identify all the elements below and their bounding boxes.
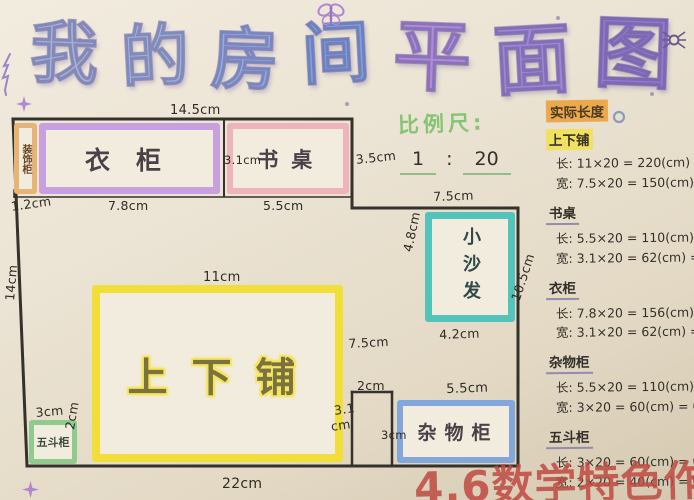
calc-section-title: 五斗柜 — [546, 426, 593, 449]
ink-dot — [78, 38, 82, 42]
sparkle-doodle — [16, 96, 32, 112]
dimension-label: 14cm — [2, 264, 20, 301]
dimension-label: 7.5cm — [348, 334, 389, 351]
calc-line: 长: 5.5×20 = 110(cm) = 1.1m — [556, 378, 694, 397]
homework-stamp: 4.6数学特色作业 — [413, 446, 694, 500]
dimension-label: 2cm — [357, 378, 385, 393]
ink-dot — [345, 102, 349, 106]
furniture-label: 小沙发 — [457, 227, 483, 308]
photo-of-floor-plan: 我的房间平面图 装饰柜衣柜书桌小沙发上下铺五斗柜杂物柜14.5cm1.2cm7.… — [0, 0, 694, 500]
furniture-label: 装饰柜 — [18, 144, 33, 174]
calc-line: 长: 5.5×20 = 110(cm) = 1.1m — [556, 229, 694, 248]
scale-numerator: 1 — [400, 148, 436, 175]
furniture-decor-cabinet: 装饰柜 — [14, 123, 37, 194]
dimension-label: 3.1cm — [224, 153, 261, 167]
dimension-label: 7.5cm — [433, 188, 474, 204]
dimension-label: 3cm — [35, 403, 64, 420]
furniture-bunk-bed: 上下铺 — [92, 285, 343, 462]
furniture-wardrobe: 衣柜 — [39, 123, 220, 194]
dimension-label: 5.5cm — [446, 381, 488, 397]
scale-ratio: 1 : 20 — [400, 148, 511, 175]
dimension-label: 14.5cm — [170, 103, 221, 118]
tree-doodle — [0, 52, 18, 96]
dimension-label: 4.2cm — [439, 326, 480, 342]
furniture-label: 上下铺 — [116, 345, 320, 403]
dimension-label: 22cm — [222, 476, 262, 492]
calc-line: 宽: 3×20 = 60(cm) = 0.6m — [556, 398, 694, 417]
furniture-sofa: 小沙发 — [425, 212, 515, 322]
dimension-label: 5.5cm — [263, 198, 303, 213]
scale-denominator: 20 — [463, 148, 511, 175]
calc-section-title: 上下铺 — [546, 129, 593, 150]
scale-colon: : — [446, 148, 452, 170]
calc-header: 实际长度 — [546, 99, 608, 122]
butterfly-doodle — [314, 0, 348, 28]
scale-label: 比例尺: — [398, 106, 486, 139]
calc-section-title: 杂物柜 — [546, 351, 593, 374]
dimension-label: 3.1 — [333, 400, 356, 418]
calculations-panel: 实际长度上下铺长: 11×20 = 220(cm) = 2.2m宽: 7.5×2… — [544, 100, 694, 494]
calc-section-title: 书桌 — [546, 202, 579, 225]
calc-section-title: 衣柜 — [546, 276, 579, 299]
dimension-label: 7.8cm — [108, 198, 148, 213]
furniture-label: 杂物柜 — [413, 418, 498, 445]
ink-dot — [556, 16, 560, 20]
dimension-label: 3cm — [381, 428, 407, 442]
calc-line: 宽: 3.1×20 = 62(cm) = 0.62m — [556, 323, 694, 342]
furniture-label: 书桌 — [251, 144, 326, 174]
furniture-label: 五斗柜 — [37, 434, 70, 450]
circle-doodle — [612, 110, 626, 124]
calc-line: 宽: 3.1×20 = 62(cm) = 0.62m — [556, 249, 694, 268]
spider-doodle — [660, 26, 688, 54]
furniture-label: 衣柜 — [72, 141, 187, 177]
dimension-label: cm — [330, 416, 352, 434]
ink-dot — [650, 92, 654, 96]
calc-line: 长: 7.8×20 = 156(cm) = 1.56m — [556, 304, 694, 323]
dimension-label: 11cm — [203, 270, 241, 285]
calc-line: 宽: 7.5×20 = 150(cm) = 1.5m — [556, 174, 694, 193]
star-doodle — [22, 481, 39, 498]
calc-line: 长: 11×20 = 220(cm) = 2.2m — [556, 154, 694, 173]
